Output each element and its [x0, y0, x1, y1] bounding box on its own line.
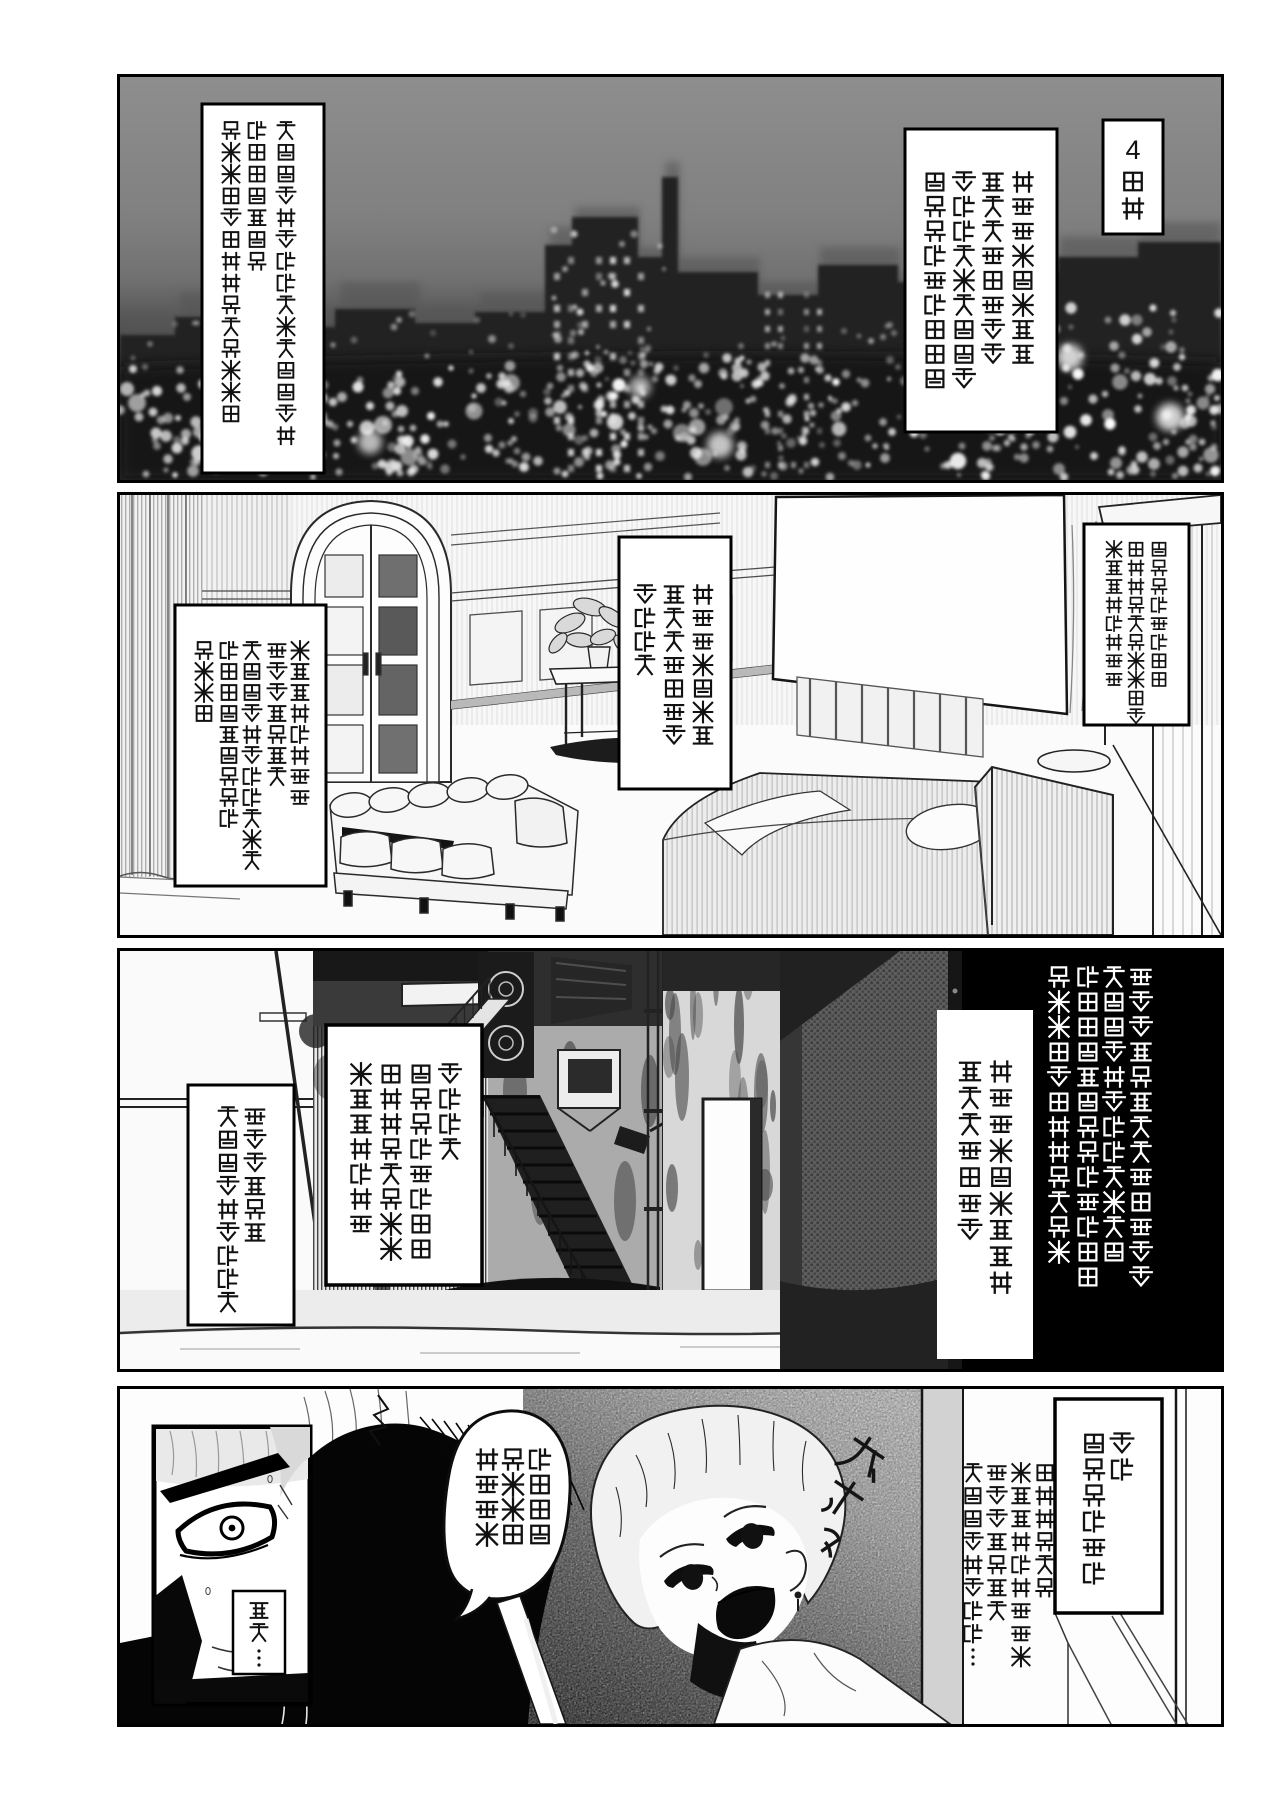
- svg-text:4: 4: [1125, 135, 1140, 165]
